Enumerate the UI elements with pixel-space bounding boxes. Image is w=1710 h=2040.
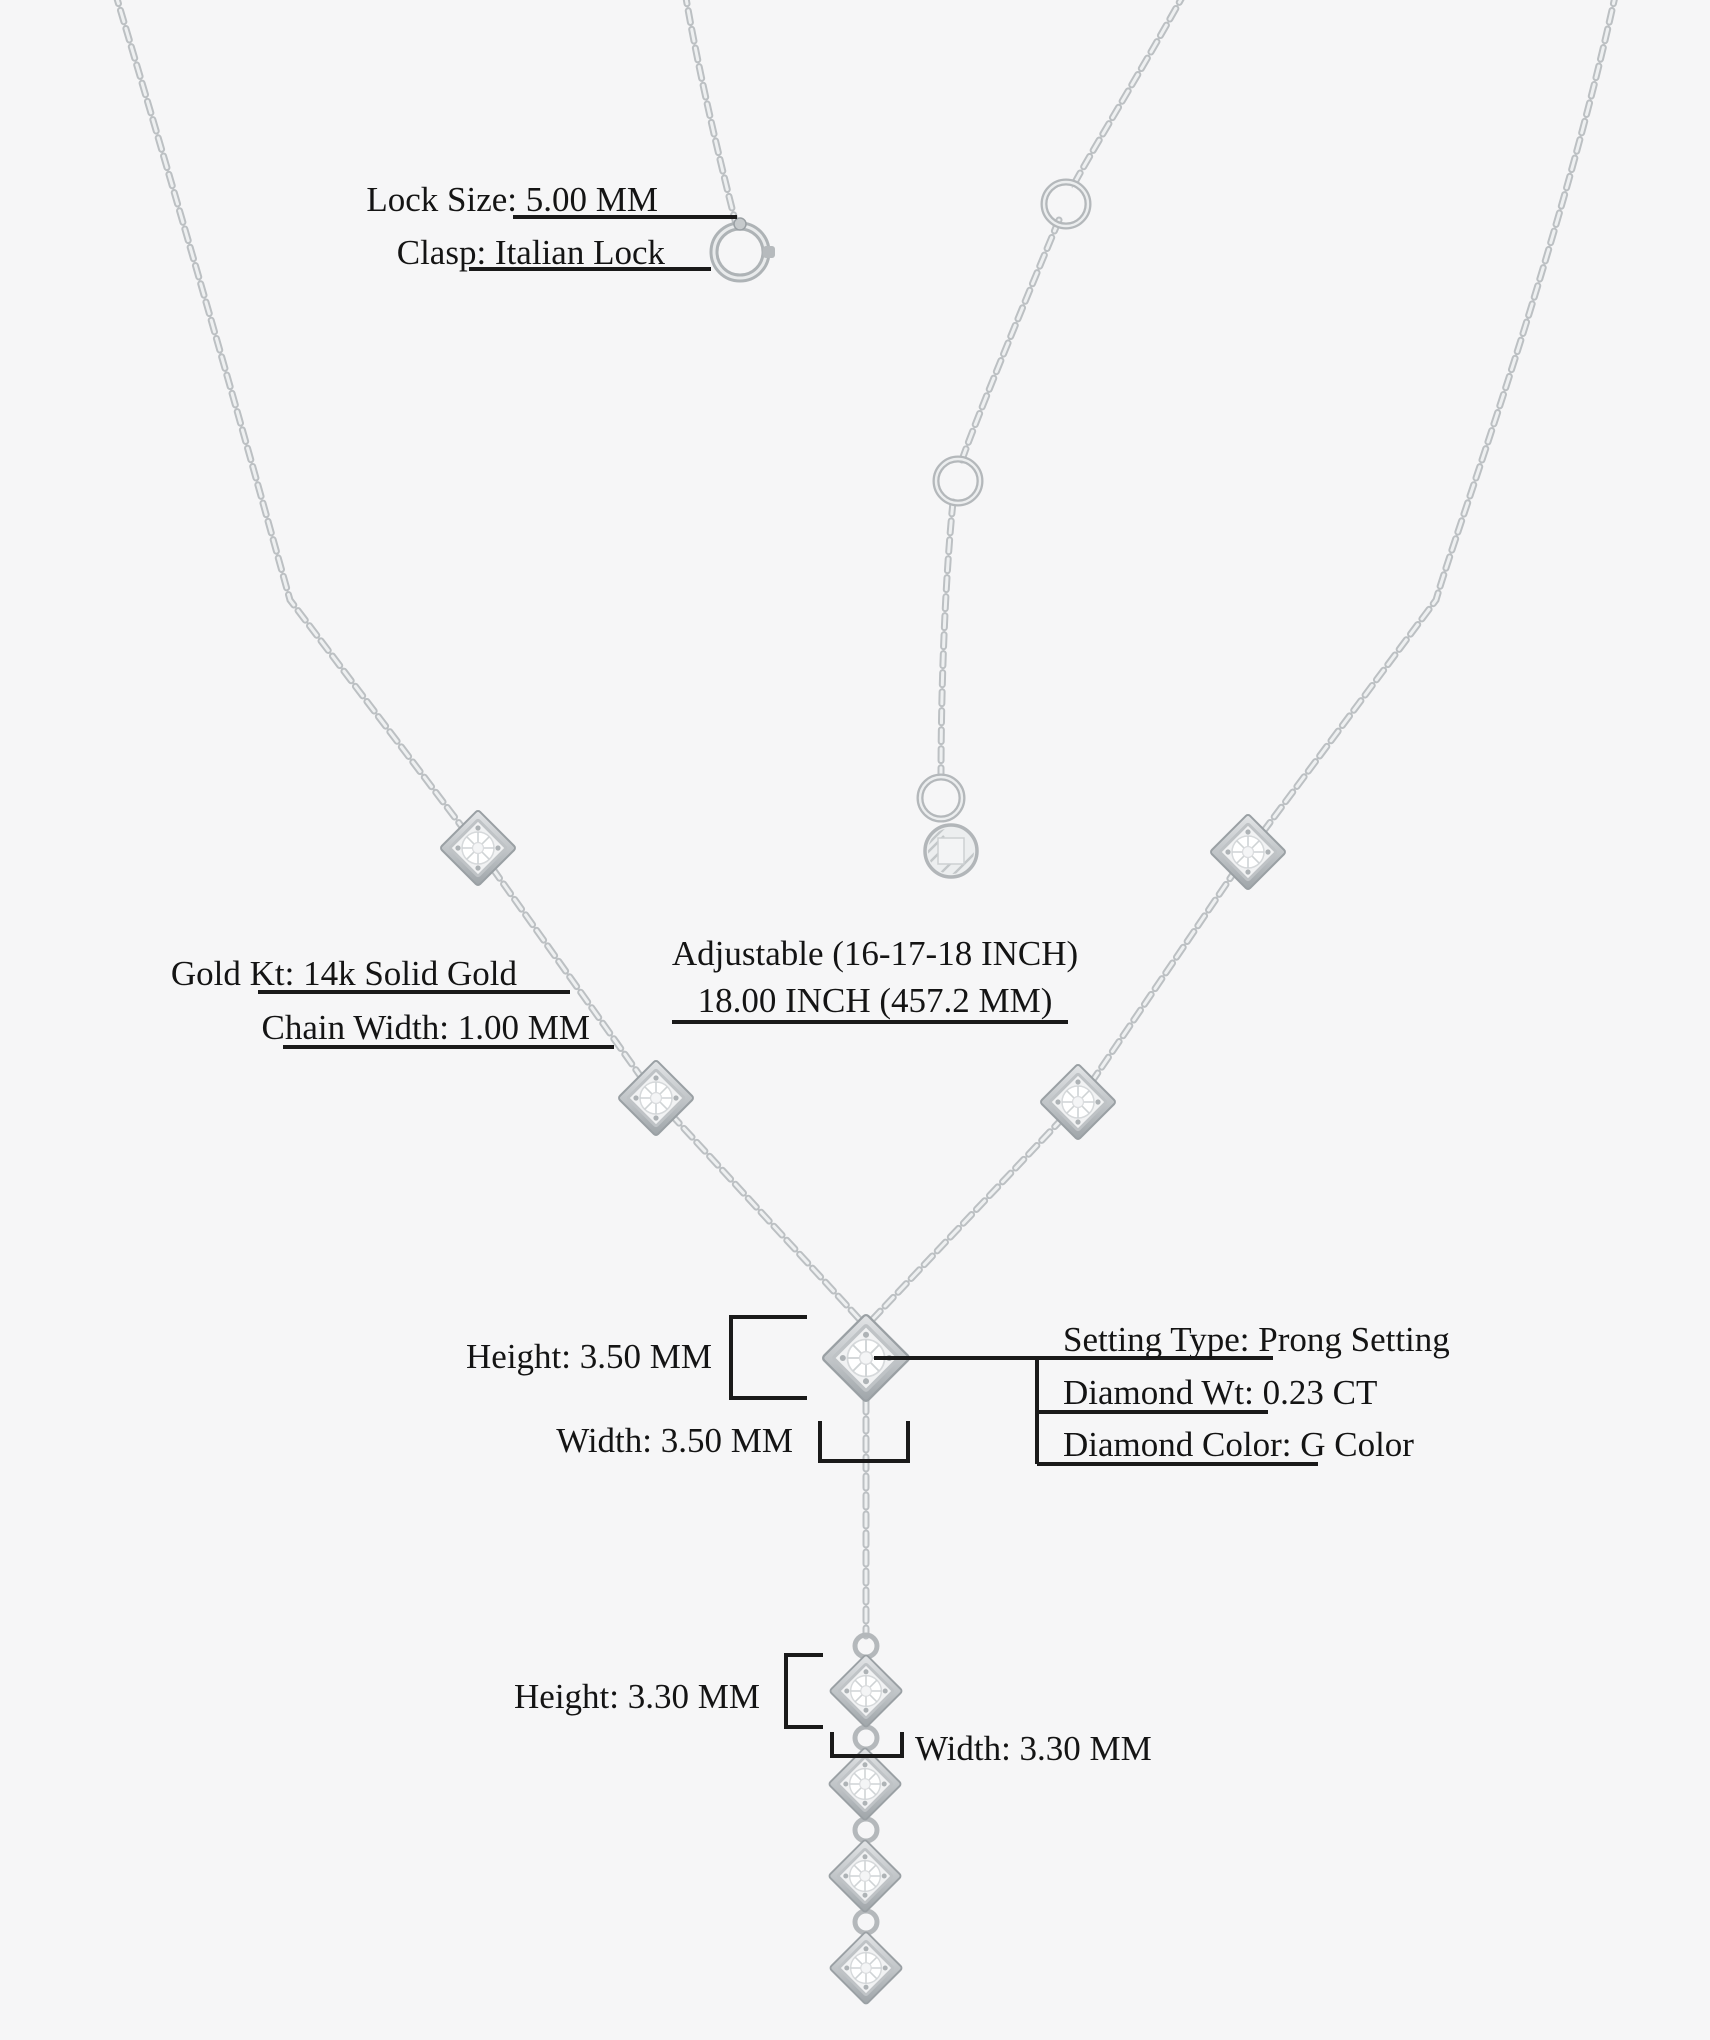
drop-diamond-2 <box>828 1747 901 1820</box>
setting-type-label: Setting Type: Prong Setting <box>1063 1320 1450 1360</box>
adjustable-label: Adjustable (16-17-18 INCH) <box>640 930 1110 977</box>
drop-diamond-3 <box>828 1839 901 1912</box>
extender-ring-2 <box>936 459 980 503</box>
height-bracket-pendant <box>731 1317 807 1398</box>
drop-width-label: Width: 3.30 MM <box>915 1729 1152 1769</box>
extender-chain <box>941 0 1185 776</box>
spring-ring-clasp <box>714 218 775 278</box>
product-diagram-canvas: .chainBase{fill:none;stroke:#bcc0c3;stro… <box>0 0 1710 2040</box>
height-bracket-drop <box>786 1655 823 1727</box>
drop-diamond-4 <box>829 1931 902 2004</box>
clasp-label: Clasp: Italian Lock <box>397 233 665 273</box>
drop-diamond-1 <box>829 1654 902 1727</box>
drop-height-label: Height: 3.30 MM <box>514 1677 760 1717</box>
clasp-end-chain <box>685 0 736 224</box>
gold-kt-label: Gold Kt: 14k Solid Gold <box>171 954 517 994</box>
diamond-color-label: Diamond Color: G Color <box>1063 1425 1414 1465</box>
diamond-weight-label: Diamond Wt: 0.23 CT <box>1063 1373 1377 1413</box>
chain-station-left-2 <box>618 1060 694 1136</box>
extender-end-ring <box>920 777 962 819</box>
chain-station-left-1 <box>440 810 516 886</box>
right-chain <box>870 0 1616 1322</box>
length-label: 18.00 INCH (457.2 MM) <box>640 977 1110 1024</box>
extender-ring-1 <box>1044 182 1088 226</box>
adjustable-length-block: Adjustable (16-17-18 INCH) 18.00 INCH (4… <box>640 930 1110 1024</box>
lock-size-label: Lock Size: 5.00 MM <box>366 180 658 220</box>
pendant-width-label: Width: 3.50 MM <box>556 1421 793 1461</box>
chain-width-label: Chain Width: 1.00 MM <box>261 1008 590 1048</box>
pendant-height-label: Height: 3.50 MM <box>466 1337 712 1377</box>
chain-station-right-1 <box>1210 814 1286 890</box>
